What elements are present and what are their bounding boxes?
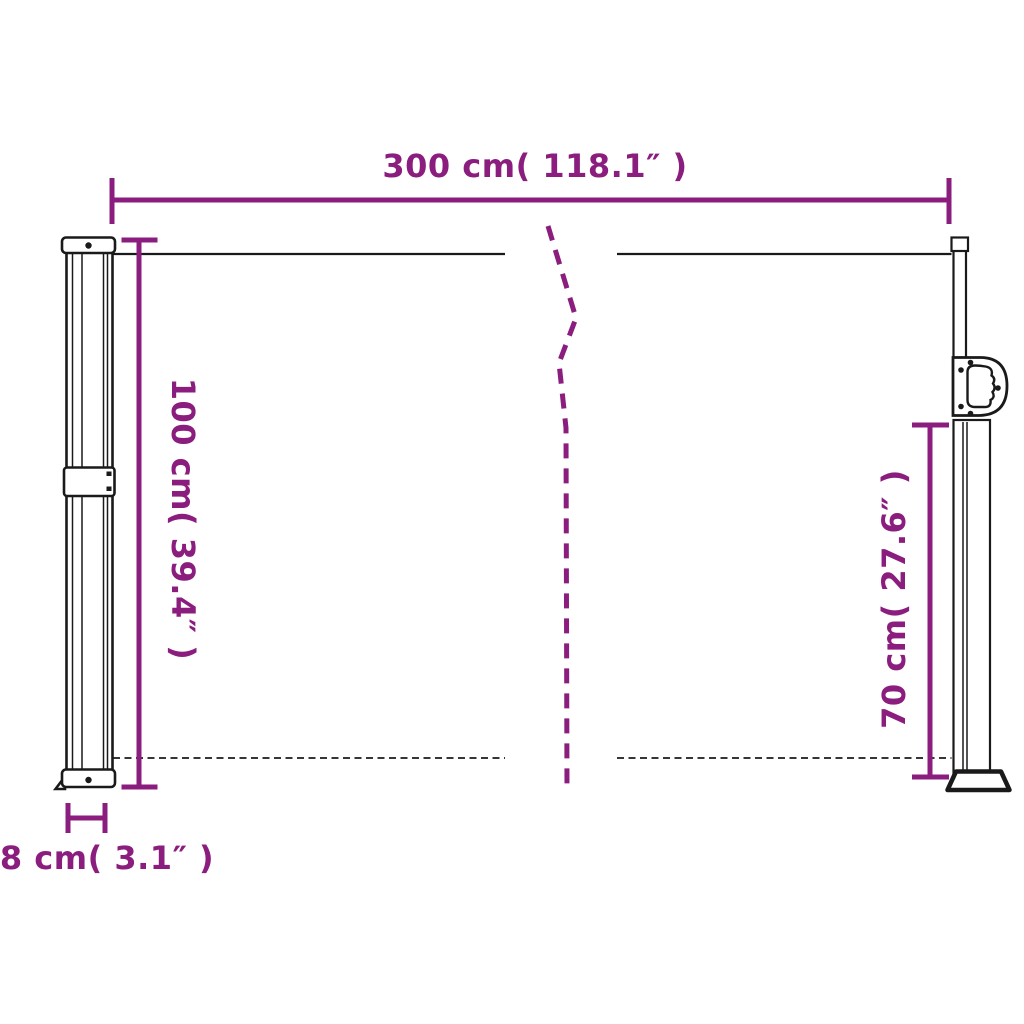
left-cassette <box>56 238 116 790</box>
pole-top-cap <box>952 238 969 252</box>
dimension-width: 300 cm( 118.1″ ) <box>112 147 949 224</box>
break-line-dashes <box>548 226 576 792</box>
screw-icon <box>968 360 974 366</box>
cassette-body <box>67 251 113 776</box>
extension-dimension-label: 70 cm( 27.6″ ) <box>875 469 913 729</box>
width-dimension-label: 300 cm( 118.1″ ) <box>382 147 687 185</box>
screw-icon <box>958 367 964 373</box>
screw-icon <box>995 385 1001 391</box>
dimension-extension-height: 70 cm( 27.6″ ) <box>875 425 949 777</box>
handle-grip-cutout <box>968 366 995 408</box>
right-pole <box>948 238 1010 791</box>
pole-base-plate <box>948 772 1010 791</box>
dimension-depth: 8 cm( 3.1″ ) <box>0 803 214 877</box>
dimension-height: 100 cm( 39.4″ ) <box>122 240 203 787</box>
screw-icon <box>85 242 91 248</box>
pole-upper-tube <box>954 251 967 358</box>
break-line <box>548 226 576 792</box>
depth-dimension-label: 8 cm( 3.1″ ) <box>0 839 214 877</box>
bracket-clip-top <box>107 472 112 477</box>
bracket-clip-bottom <box>107 487 112 492</box>
awning-diagram-canvas: 300 cm( 118.1″ ) 100 cm( 39.4″ ) 70 cm( … <box>0 0 1024 1024</box>
height-dimension-label: 100 cm( 39.4″ ) <box>164 378 202 661</box>
awning-fabric <box>113 254 952 758</box>
screw-icon <box>958 404 964 410</box>
screw-icon <box>85 777 91 783</box>
product-dimension-diagram: 300 cm( 118.1″ ) 100 cm( 39.4″ ) 70 cm( … <box>0 0 1024 1024</box>
pole-lower-tube <box>954 420 991 776</box>
screw-icon <box>968 411 974 417</box>
